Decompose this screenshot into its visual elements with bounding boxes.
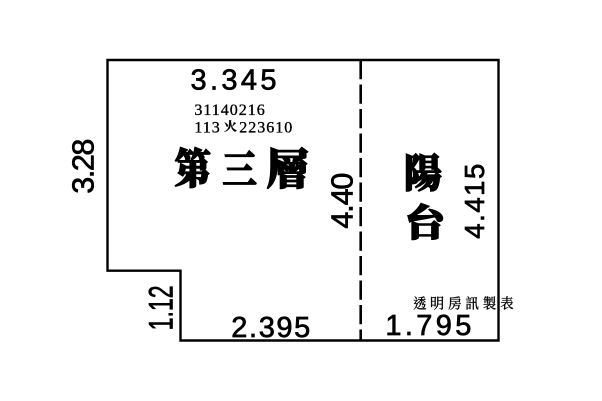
svg-text:113: 113 xyxy=(194,119,220,136)
svg-text:31140216: 31140216 xyxy=(194,102,265,119)
svg-text:4.40: 4.40 xyxy=(326,173,360,229)
svg-text:3.345: 3.345 xyxy=(191,64,277,96)
svg-text:3.28: 3.28 xyxy=(67,139,101,194)
svg-text:1.12: 1.12 xyxy=(142,285,180,330)
svg-text:223610: 223610 xyxy=(239,119,293,136)
svg-text:2.395: 2.395 xyxy=(231,312,310,344)
svg-text:1.795: 1.795 xyxy=(385,310,471,342)
svg-text:4.415: 4.415 xyxy=(459,164,490,239)
